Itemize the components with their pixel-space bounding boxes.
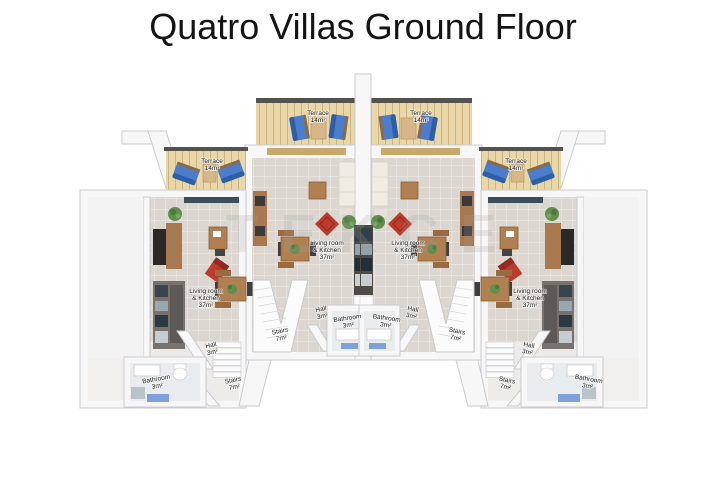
living-label: Living room (310, 240, 344, 247)
living-label2: & Kitchen (516, 295, 544, 302)
kitchen-unit (153, 281, 185, 349)
villa-far-right (474, 131, 647, 408)
living-area: 37m² (523, 302, 539, 309)
living-area: 37m² (401, 254, 417, 261)
terrace-area: 14m² (205, 165, 221, 172)
tv (153, 229, 166, 265)
living-label2: & Kitchen (394, 247, 422, 254)
floor-plan-drawing: TEKCE Terrace 14m² Living room & Kitchen… (0, 0, 726, 485)
living-label2: & Kitchen (192, 295, 220, 302)
villa-far-left (80, 131, 253, 408)
window-strip (381, 148, 460, 155)
living-label2: & Kitchen (313, 247, 341, 254)
console-desk (309, 182, 326, 199)
desk (209, 227, 227, 249)
terrace-area: 14m² (311, 117, 327, 124)
living-area: 37m² (320, 254, 336, 261)
living-area: 37m² (199, 302, 215, 309)
floor-plan-page: Quatro Villas Ground Floor (0, 0, 726, 485)
watermark: TEKCE (225, 204, 518, 264)
terrace-area: 14m² (414, 117, 430, 124)
bathroom (124, 357, 206, 407)
terrace-area: 14m² (509, 165, 525, 172)
terrace-roof-edge (164, 147, 248, 151)
desk-chair (215, 249, 225, 256)
terrace-label: Terrace (201, 158, 223, 165)
window-strip (267, 148, 346, 155)
terrace-label: Terrace (505, 158, 527, 165)
window-band (184, 197, 239, 203)
terrace-label: Terrace (410, 110, 432, 117)
living-label: Living room (189, 288, 223, 295)
terrace-label: Terrace (307, 110, 329, 117)
stairs (213, 342, 241, 378)
media-cabinet (166, 223, 182, 269)
living-label: Living room (391, 240, 425, 247)
living-label: Living room (513, 288, 547, 295)
